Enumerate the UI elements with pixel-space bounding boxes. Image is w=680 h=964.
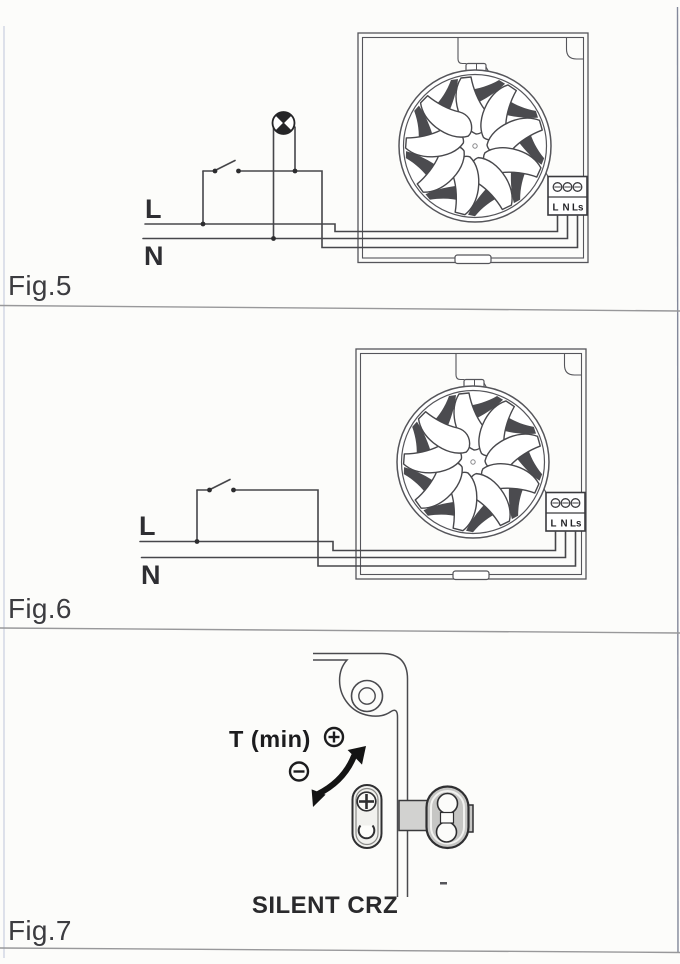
housing-corner-notch bbox=[567, 38, 584, 60]
fig5-terminal-block: L N Ls bbox=[548, 177, 587, 216]
scanned-manual-page: L N Ls bbox=[0, 0, 680, 964]
fig5-neutral-label: N bbox=[144, 243, 164, 270]
terminal-label-l: L bbox=[553, 203, 559, 214]
fig5-live-label: L bbox=[145, 196, 162, 223]
corner-grommet-hole bbox=[359, 688, 375, 704]
fig5-caption: Fig.5 bbox=[8, 272, 72, 300]
terminal-screw-icon bbox=[561, 499, 570, 508]
neutral-wire bbox=[142, 532, 566, 558]
divider-bottom bbox=[0, 948, 680, 953]
connector-hole bbox=[437, 822, 457, 842]
fan-impeller-icon bbox=[399, 68, 554, 223]
neutral-wire bbox=[143, 216, 568, 239]
fig6-terminal-block: L N Ls bbox=[546, 493, 585, 532]
plus-icon bbox=[325, 728, 343, 746]
timer-adjust-screw[interactable] bbox=[353, 785, 382, 848]
terminal-label-l: L bbox=[551, 519, 557, 530]
switch-contact-dot bbox=[231, 488, 236, 493]
phillips-screw-icon[interactable] bbox=[357, 792, 376, 811]
fig7-timer-label: T (min) bbox=[229, 728, 311, 752]
fan-impeller-icon bbox=[397, 384, 552, 539]
terminal-screw-icon bbox=[553, 183, 562, 192]
page-borders bbox=[0, 7, 680, 958]
terminal-label-ls: Ls bbox=[572, 203, 584, 214]
corner-grommet bbox=[352, 681, 383, 712]
fig7-caption: Fig.7 bbox=[8, 917, 72, 945]
switch-contact-dot bbox=[236, 169, 241, 174]
terminal-label-ls: Ls bbox=[570, 519, 582, 530]
housing-corner-notch bbox=[565, 354, 582, 376]
housing-bottom-tab bbox=[453, 571, 489, 580]
stray-mark bbox=[440, 882, 447, 885]
terminal-screw-icon bbox=[573, 183, 582, 192]
switch-lever bbox=[211, 480, 230, 490]
fig7-adjustment-detail bbox=[290, 654, 473, 898]
switch-lever bbox=[216, 161, 235, 171]
terminal-screw-icon bbox=[571, 499, 580, 508]
junction-dot bbox=[201, 222, 206, 227]
terminal-label-n: N bbox=[563, 203, 570, 214]
divider-fig6-fig7 bbox=[0, 628, 680, 633]
fig6-junction-dots bbox=[195, 488, 236, 544]
diagram-artwork: L N Ls bbox=[0, 0, 680, 964]
divider-fig5-fig6 bbox=[0, 306, 680, 312]
fig6-neutral-label: N bbox=[141, 562, 161, 589]
housing-bottom-tab bbox=[455, 255, 491, 264]
fig5-wiring-diagram: L N Ls bbox=[143, 33, 588, 264]
connector-hole bbox=[438, 794, 458, 814]
fig6-wiring-diagram: L N Ls bbox=[140, 349, 586, 580]
panel-corner bbox=[313, 654, 408, 898]
junction-dot bbox=[195, 539, 200, 544]
lamp-icon bbox=[273, 112, 295, 134]
junction-dot bbox=[293, 169, 298, 174]
connector-block bbox=[399, 787, 473, 849]
terminal-screw-icon bbox=[551, 499, 560, 508]
fig5-junction-dots bbox=[201, 169, 298, 241]
switch-contact-dot bbox=[207, 488, 212, 493]
junction-dot bbox=[271, 236, 276, 241]
right-page-edge bbox=[678, 7, 679, 952]
terminal-label-n: N bbox=[561, 519, 568, 530]
keyhole-opening bbox=[359, 826, 375, 839]
switch-contact-dot bbox=[213, 169, 218, 174]
fig6-caption: Fig.6 bbox=[8, 595, 72, 623]
fig7-product-name: SILENT CRZ bbox=[245, 894, 405, 918]
connector-window bbox=[441, 813, 454, 824]
minus-icon bbox=[290, 763, 308, 781]
terminal-screw-icon bbox=[563, 183, 572, 192]
fig6-live-label: L bbox=[139, 513, 156, 540]
